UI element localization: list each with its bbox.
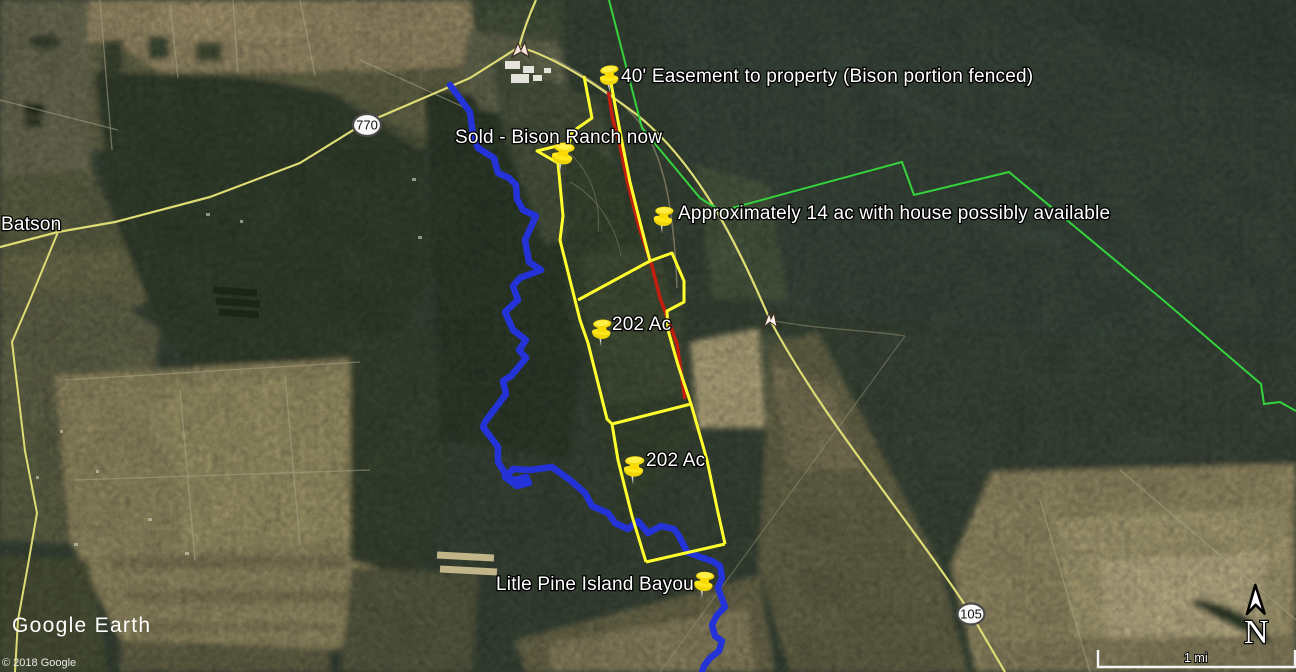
- svg-text:770: 770: [356, 118, 378, 133]
- svg-text:Sold - Bison Ranch now: Sold - Bison Ranch now: [455, 127, 662, 148]
- svg-text:105: 105: [960, 607, 982, 622]
- svg-text:Litle Pine Island Bayou: Litle Pine Island Bayou: [496, 574, 694, 595]
- svg-text:Batson: Batson: [1, 214, 61, 235]
- svg-text:Approximately 14 ac with house: Approximately 14 ac with house possibly …: [678, 203, 1110, 224]
- svg-text:© 2018 Google: © 2018 Google: [2, 657, 76, 669]
- svg-text:1 mi: 1 mi: [1184, 651, 1208, 665]
- svg-text:202 Ac: 202 Ac: [646, 450, 705, 471]
- svg-text:Google Earth: Google Earth: [12, 614, 151, 637]
- svg-text:N: N: [1244, 614, 1269, 651]
- svg-text:40' Easement to property (Biso: 40' Easement to property (Bison portion …: [621, 66, 1033, 87]
- svg-text:202 Ac: 202 Ac: [612, 314, 671, 335]
